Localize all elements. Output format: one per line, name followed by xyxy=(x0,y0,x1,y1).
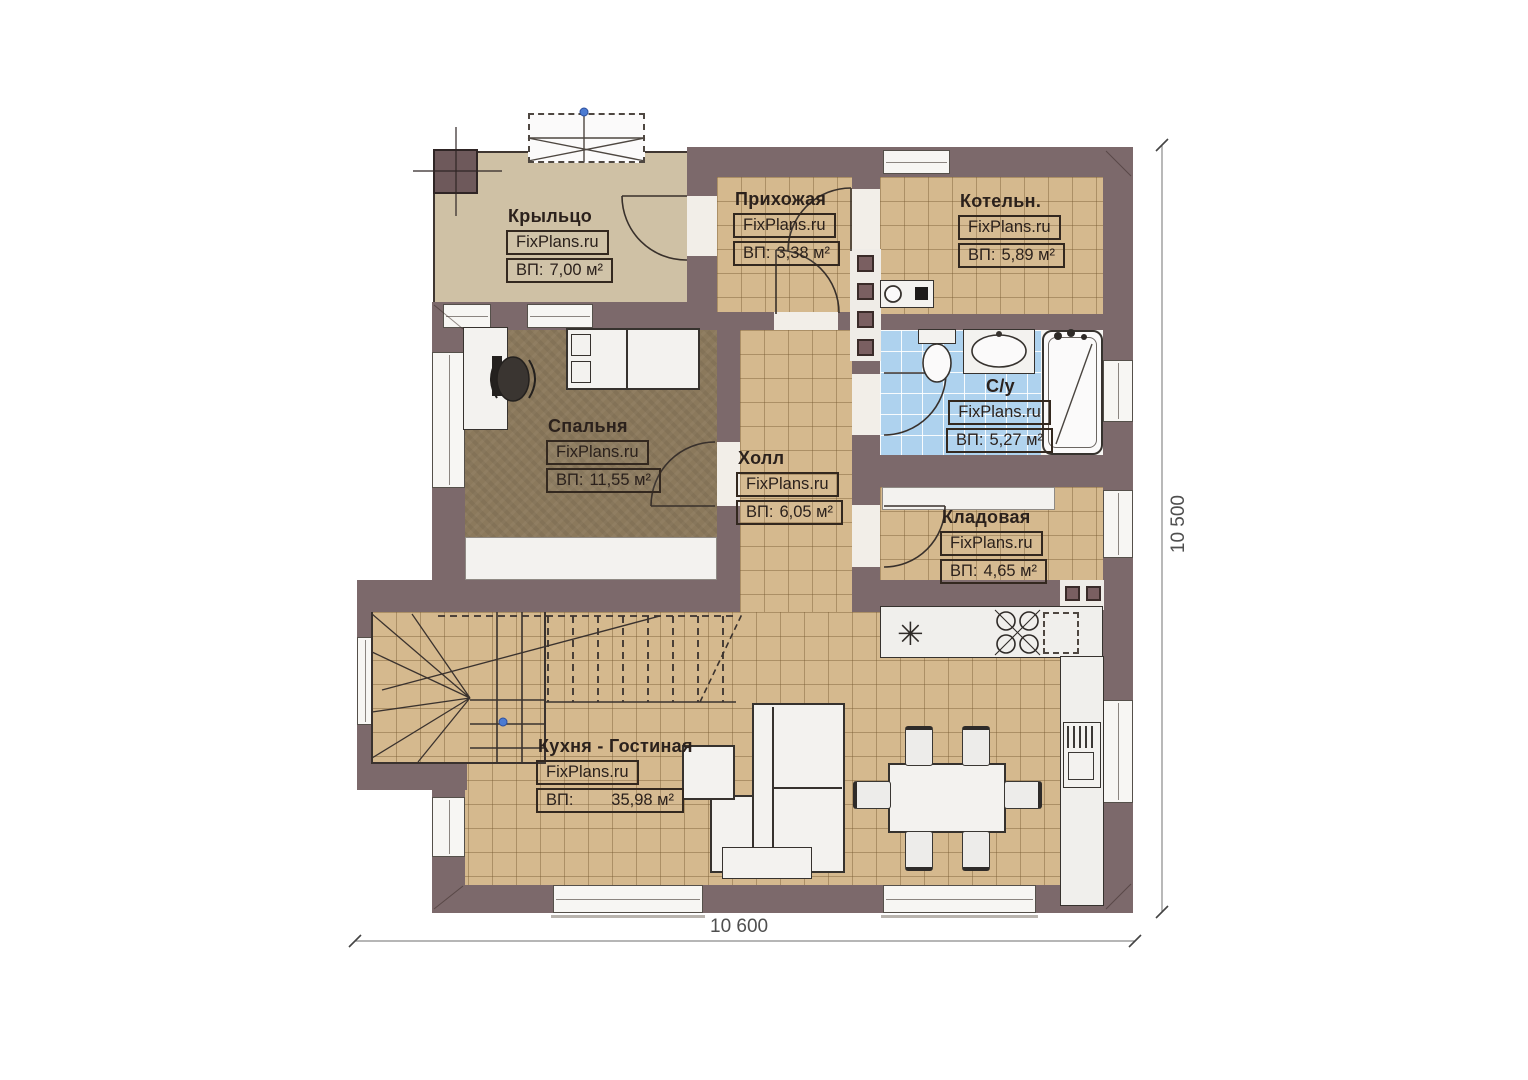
wall-segment xyxy=(852,455,1103,487)
vent-square xyxy=(857,283,874,300)
brand-box: FixPlans.ru xyxy=(506,230,609,255)
wardrobe xyxy=(465,537,717,580)
area-box: ВП:7,00 м² xyxy=(506,258,613,283)
area-label: ВП: xyxy=(956,431,983,450)
dimension-right: 10 500 xyxy=(1168,495,1190,553)
wall-segment xyxy=(880,314,1103,330)
boiler-switch xyxy=(915,287,928,300)
room-label-storage: Кладовая FixPlans.ru ВП:4,65 м² xyxy=(940,507,1047,584)
bed xyxy=(566,328,700,390)
room-label-porch: Крыльцо FixPlans.ru ВП:7,00 м² xyxy=(506,206,613,283)
area-label: ВП: xyxy=(743,244,770,263)
entrance-steps xyxy=(528,113,645,163)
room-name: Кладовая xyxy=(940,507,1031,528)
room-name: Прихожая xyxy=(733,189,826,210)
chimney-column xyxy=(433,149,478,194)
room-name: Котельн. xyxy=(958,191,1041,212)
dining-chair xyxy=(905,726,933,766)
window xyxy=(1103,700,1133,803)
wall-segment xyxy=(357,580,740,612)
monitor xyxy=(492,356,502,396)
brand-box: FixPlans.ru xyxy=(536,760,639,785)
door-opening-entry-hall xyxy=(774,312,838,330)
area-value: 35,98 м² xyxy=(611,791,674,810)
brand-text: FixPlans.ru xyxy=(958,403,1041,422)
door-opening-boiler xyxy=(852,189,880,251)
floor-plan: ✳ xyxy=(0,0,1528,1080)
brand-box: FixPlans.ru xyxy=(546,440,649,465)
window xyxy=(1103,360,1133,422)
area-label: ВП: xyxy=(950,562,977,581)
room-label-boiler: Котельн. FixPlans.ru ВП:5,89 м² xyxy=(958,191,1065,268)
dining-chair xyxy=(905,831,933,871)
window xyxy=(443,304,491,328)
outside-mask xyxy=(357,790,432,885)
brand-text: FixPlans.ru xyxy=(950,534,1033,553)
area-label: ВП: xyxy=(516,261,543,280)
vent-square xyxy=(1065,586,1080,601)
area-box: ВП:3,38 м² xyxy=(733,241,840,266)
appliance-dashed xyxy=(1043,612,1079,654)
brand-text: FixPlans.ru xyxy=(743,216,826,235)
brand-box: FixPlans.ru xyxy=(948,400,1051,425)
window xyxy=(357,637,372,725)
door-opening-bathroom xyxy=(852,374,880,435)
room-name: Спальня xyxy=(546,416,628,437)
dining-chair xyxy=(853,781,891,809)
area-label: ВП: xyxy=(968,246,995,265)
area-box: ВП:4,65 м² xyxy=(940,559,1047,584)
area-value: 5,27 м² xyxy=(989,431,1043,450)
area-value: 6,05 м² xyxy=(779,503,833,522)
room-name: Холл xyxy=(736,448,784,469)
brand-box: FixPlans.ru xyxy=(940,531,1043,556)
window-sill xyxy=(881,915,1038,918)
room-name: С/у xyxy=(984,376,1015,397)
area-label: ВП: xyxy=(546,791,573,810)
vent-square xyxy=(857,255,874,272)
brand-text: FixPlans.ru xyxy=(516,233,599,252)
vent-square xyxy=(857,311,874,328)
area-value: 11,55 м² xyxy=(589,471,651,490)
area-label: ВП: xyxy=(746,503,773,522)
brand-text: FixPlans.ru xyxy=(556,443,639,462)
dining-chair xyxy=(962,726,990,766)
room-name: Кухня - Гостиная xyxy=(536,736,693,757)
dining-chair xyxy=(962,831,990,871)
room-label-hall: Холл FixPlans.ru ВП:6,05 м² xyxy=(736,448,843,525)
brand-text: FixPlans.ru xyxy=(546,763,629,782)
sink-icon: ✳ xyxy=(897,618,924,650)
vent-square xyxy=(1086,586,1101,601)
room-name: Крыльцо xyxy=(506,206,592,227)
area-value: 5,89 м² xyxy=(1001,246,1055,265)
area-value: 7,00 м² xyxy=(549,261,603,280)
dining-table xyxy=(888,763,1006,833)
window xyxy=(553,885,703,913)
brand-text: FixPlans.ru xyxy=(746,475,829,494)
brand-text: FixPlans.ru xyxy=(968,218,1051,237)
window xyxy=(1103,490,1133,558)
fridge xyxy=(1063,722,1101,788)
wall-segment xyxy=(357,763,467,790)
window xyxy=(883,150,950,174)
window xyxy=(527,304,593,328)
door-opening-storage xyxy=(852,505,880,567)
room-label-bathroom: С/у FixPlans.ru ВП:5,27 м² xyxy=(946,376,1053,453)
area-box: ВП:6,05 м² xyxy=(736,500,843,525)
brand-box: FixPlans.ru xyxy=(733,213,836,238)
toilet-tank xyxy=(918,329,956,344)
door-opening-front xyxy=(687,196,717,256)
dimension-line-right xyxy=(1156,139,1168,918)
brand-box: FixPlans.ru xyxy=(736,472,839,497)
area-value: 4,65 м² xyxy=(983,562,1037,581)
area-value: 3,38 м² xyxy=(776,244,830,263)
room-label-kitchen: Кухня - Гостиная FixPlans.ru ВП:35,98 м² xyxy=(536,736,693,813)
dimension-bottom: 10 600 xyxy=(710,916,768,938)
bathroom-sink xyxy=(963,329,1035,374)
brand-box: FixPlans.ru xyxy=(958,215,1061,240)
area-box: ВП:35,98 м² xyxy=(536,788,684,813)
vent-square xyxy=(857,339,874,356)
area-box: ВП:5,27 м² xyxy=(946,428,1053,453)
window xyxy=(432,352,465,488)
dining-chair xyxy=(1004,781,1042,809)
area-label: ВП: xyxy=(556,471,583,490)
room-label-entry: Прихожая FixPlans.ru ВП:3,38 м² xyxy=(733,189,840,266)
window-sill xyxy=(551,915,705,918)
area-box: ВП:11,55 м² xyxy=(546,468,661,493)
tv-stand xyxy=(722,847,812,879)
room-label-bedroom: Спальня FixPlans.ru ВП:11,55 м² xyxy=(546,416,661,493)
window xyxy=(432,797,465,857)
window xyxy=(883,885,1036,913)
area-box: ВП:5,89 м² xyxy=(958,243,1065,268)
